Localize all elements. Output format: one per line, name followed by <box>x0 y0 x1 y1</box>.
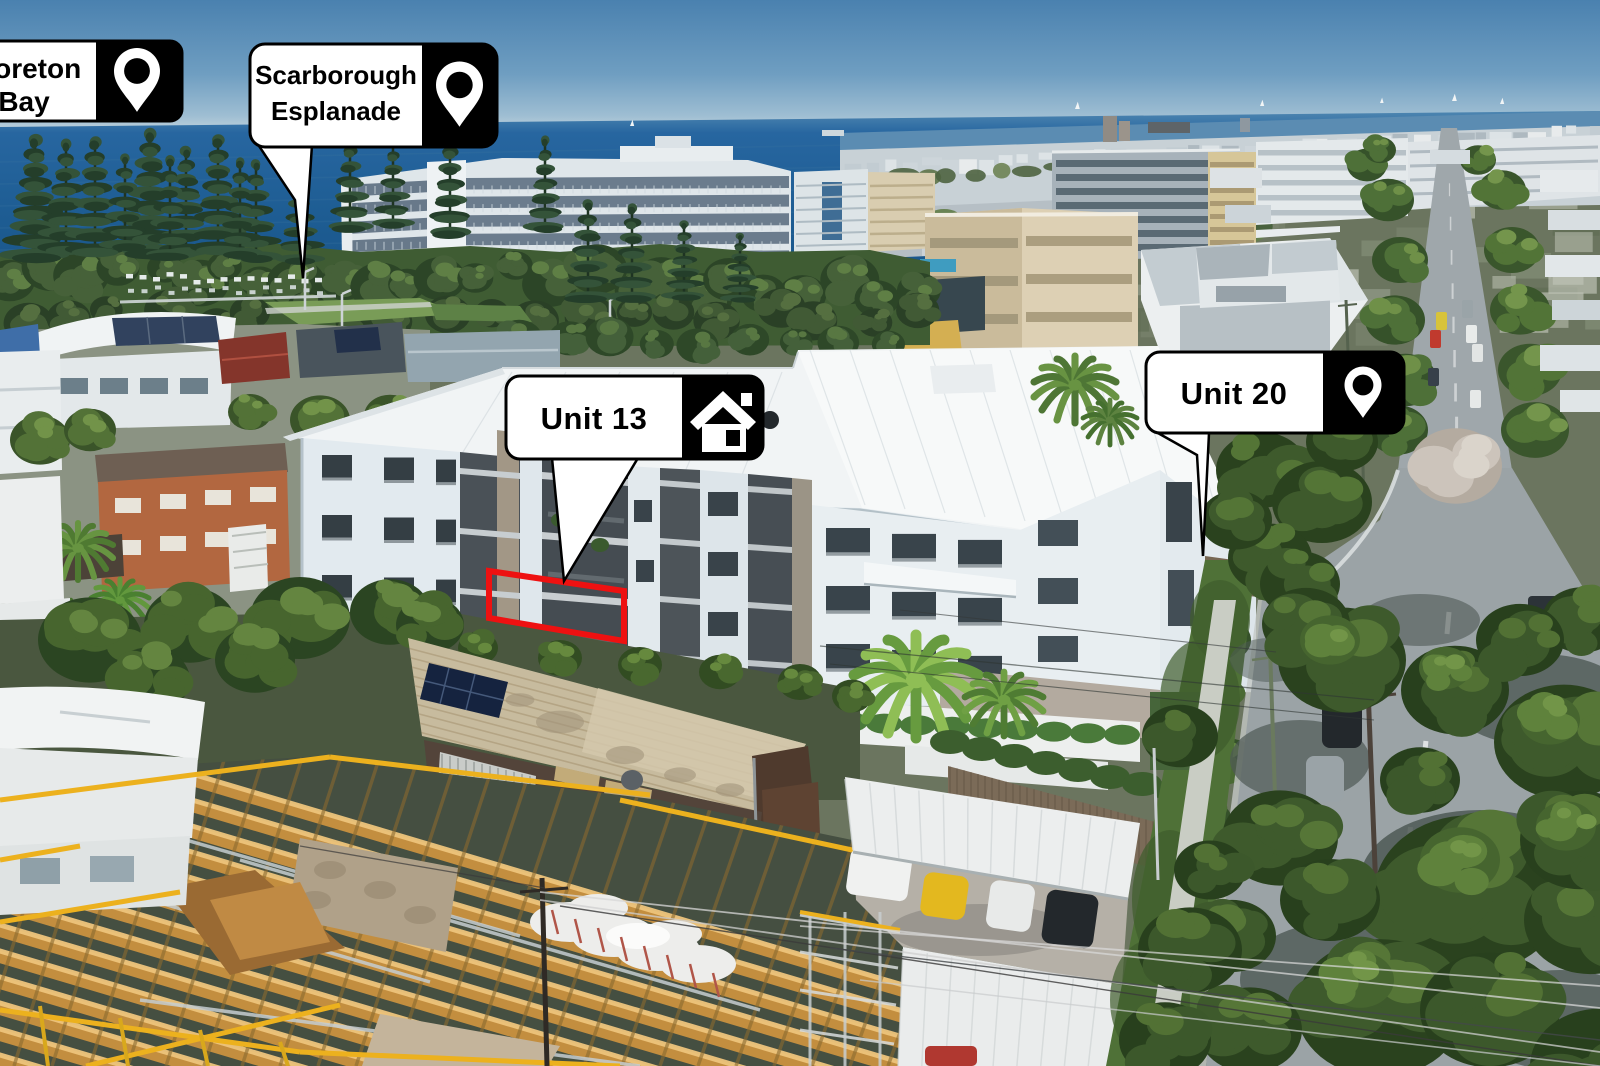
svg-text:Moreton: Moreton <box>0 53 81 84</box>
svg-text:Unit 13: Unit 13 <box>541 401 648 436</box>
svg-text:Unit 20: Unit 20 <box>1181 376 1288 411</box>
svg-text:Esplanade: Esplanade <box>271 96 401 126</box>
svg-text:Bay: Bay <box>0 86 50 117</box>
svg-text:Scarborough: Scarborough <box>255 60 417 90</box>
